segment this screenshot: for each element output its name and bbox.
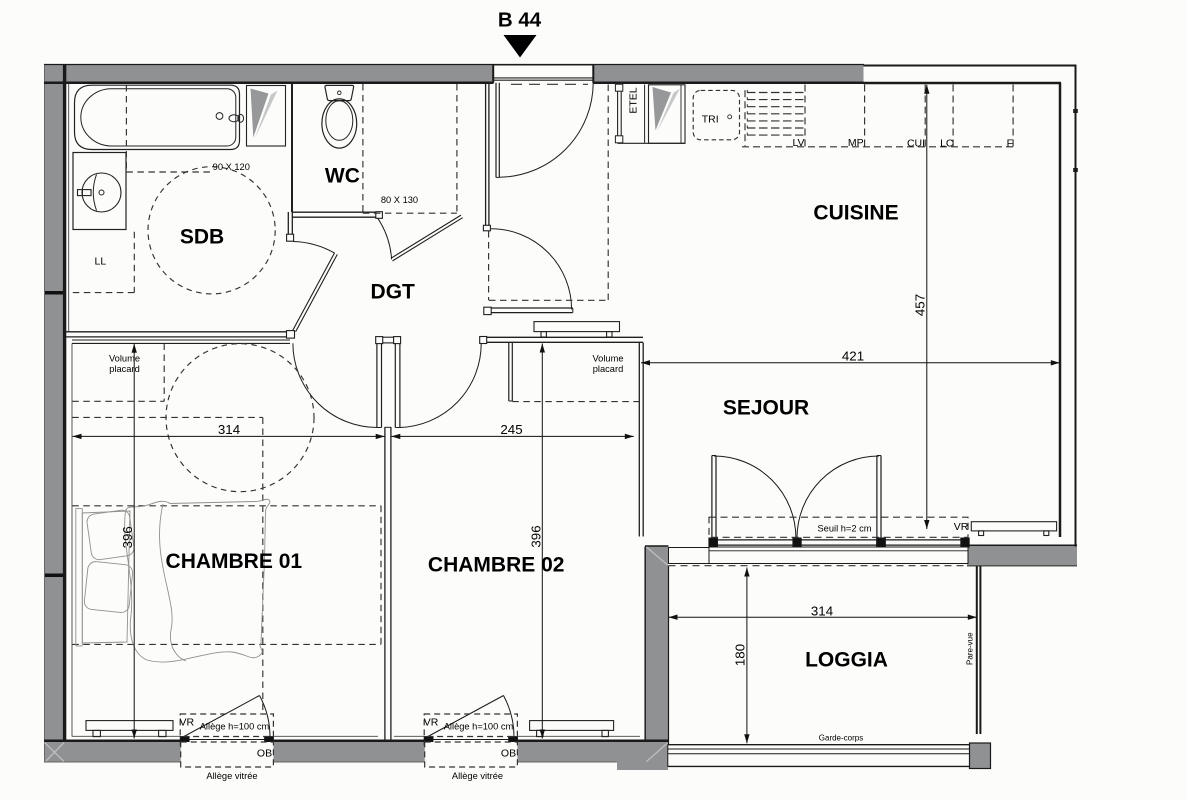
- svg-text:WC: WC: [325, 164, 360, 187]
- svg-text:396: 396: [529, 525, 544, 547]
- svg-text:80 X 130: 80 X 130: [381, 195, 418, 205]
- svg-text:CUI: CUI: [907, 138, 925, 150]
- svg-text:LOGGIA: LOGGIA: [805, 649, 888, 672]
- svg-text:Allège vitrée: Allège vitrée: [206, 771, 257, 781]
- svg-text:Volume: Volume: [592, 354, 623, 364]
- svg-text:Garde-corps: Garde-corps: [819, 734, 863, 743]
- svg-text:LL: LL: [95, 256, 107, 268]
- svg-text:placard: placard: [109, 364, 140, 374]
- svg-text:B 44: B 44: [498, 9, 542, 32]
- svg-text:VR: VR: [180, 717, 195, 729]
- svg-text:Allège h=100 cm: Allège h=100 cm: [200, 722, 270, 732]
- svg-text:ETEL: ETEL: [628, 87, 640, 113]
- svg-text:SDB: SDB: [180, 226, 224, 249]
- svg-text:245: 245: [500, 422, 522, 437]
- svg-text:placard: placard: [593, 364, 624, 374]
- svg-text:CHAMBRE 02: CHAMBRE 02: [428, 554, 565, 577]
- svg-text:Volume: Volume: [109, 354, 140, 364]
- svg-text:OB: OB: [501, 748, 516, 760]
- svg-text:OB: OB: [257, 748, 272, 760]
- svg-text:LC: LC: [940, 138, 954, 150]
- svg-text:457: 457: [913, 294, 928, 316]
- svg-text:180: 180: [733, 644, 748, 666]
- svg-text:CHAMBRE 01: CHAMBRE 01: [166, 550, 303, 573]
- svg-text:396: 396: [120, 526, 135, 548]
- svg-text:VR: VR: [424, 717, 439, 729]
- svg-text:90 X 120: 90 X 120: [213, 162, 250, 172]
- svg-text:TRI: TRI: [702, 114, 719, 126]
- svg-text:Seuil h=2 cm: Seuil h=2 cm: [817, 524, 871, 534]
- svg-text:Allège h=100 cm: Allège h=100 cm: [444, 722, 514, 732]
- svg-text:DGT: DGT: [371, 280, 416, 303]
- svg-text:LV: LV: [792, 137, 804, 149]
- svg-text:314: 314: [218, 422, 240, 437]
- svg-text:VR: VR: [954, 521, 969, 533]
- svg-text:MP: MP: [848, 137, 864, 149]
- svg-text:F: F: [1007, 138, 1013, 150]
- svg-text:Allège vitrée: Allège vitrée: [452, 771, 503, 781]
- svg-text:314: 314: [811, 603, 833, 618]
- svg-text:421: 421: [842, 348, 864, 363]
- svg-text:SEJOUR: SEJOUR: [723, 397, 809, 420]
- svg-text:Pare-vue: Pare-vue: [965, 632, 974, 665]
- svg-text:CUISINE: CUISINE: [813, 202, 898, 225]
